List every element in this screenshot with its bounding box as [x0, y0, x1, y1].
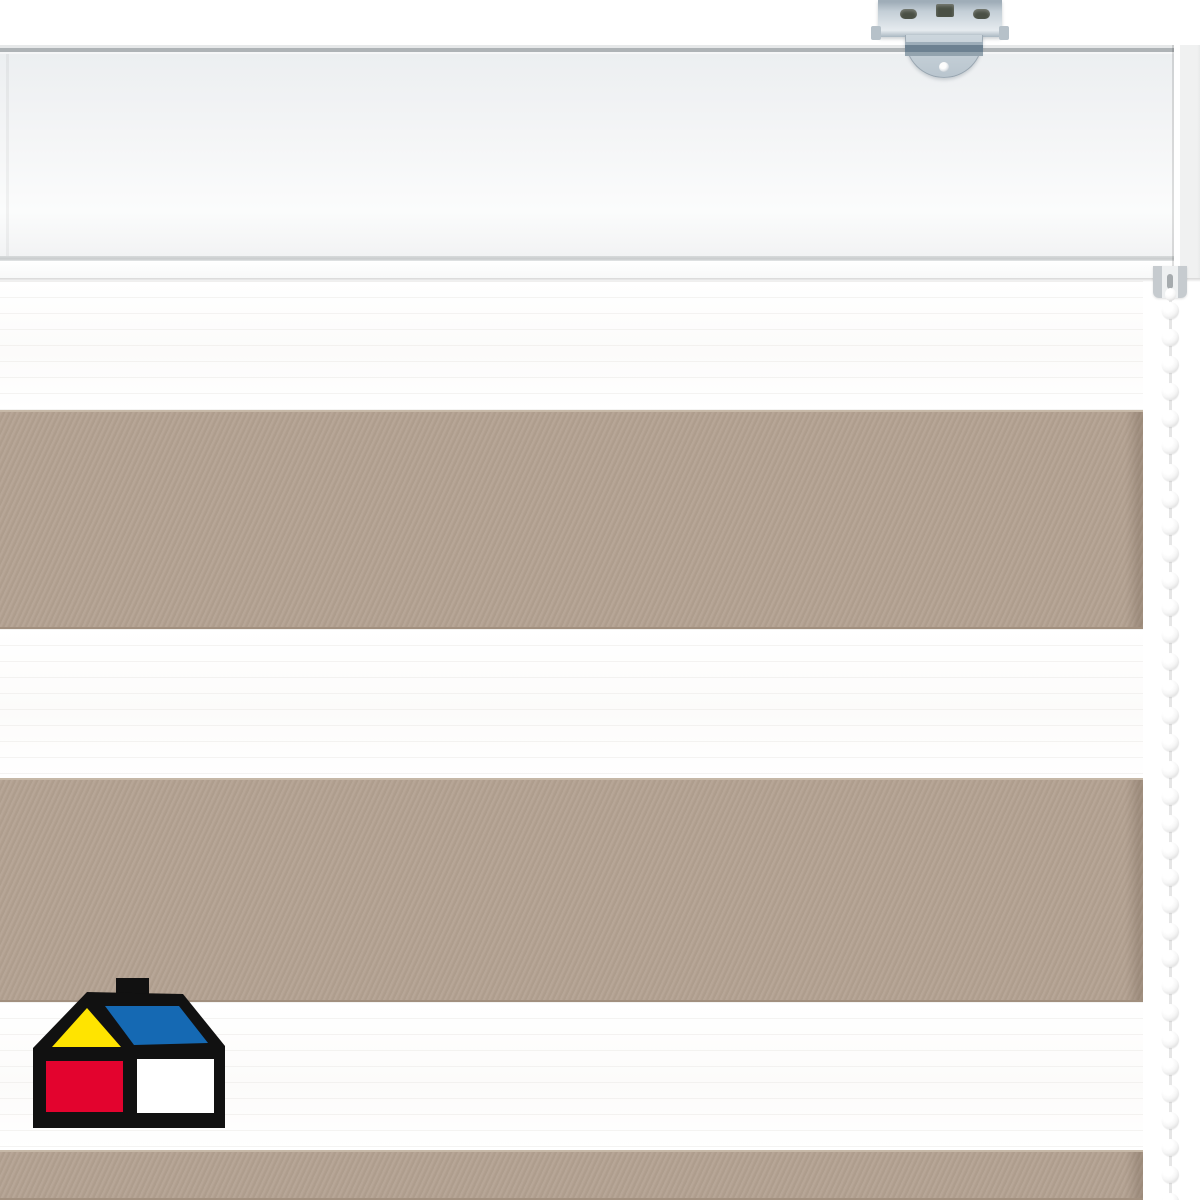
- fabric-stripe-taupe: [0, 778, 1143, 1002]
- chain-bead: [1162, 491, 1179, 508]
- chain-bead: [1162, 518, 1179, 535]
- chain-bead: [1162, 599, 1179, 616]
- bracket-clip-hole: [939, 62, 949, 72]
- headrail-shadow: [0, 278, 1200, 282]
- fabric-stripe-sheer-white: [0, 281, 1143, 410]
- chain-bead: [1162, 923, 1179, 940]
- chain-bead: [1162, 842, 1179, 859]
- chain-bead: [1162, 464, 1179, 481]
- chain-bead: [1162, 1085, 1179, 1102]
- chain-bead: [1162, 383, 1179, 400]
- bracket-screw-slot: [900, 9, 917, 19]
- chain-bead: [1162, 977, 1179, 994]
- chain-mechanism-slot: [1167, 274, 1173, 289]
- chain-bead: [1162, 1166, 1179, 1183]
- headrail-left-seam: [6, 54, 9, 256]
- chain-bead: [1162, 950, 1179, 967]
- bracket-screw-slot: [973, 9, 990, 19]
- chain-bead: [1162, 626, 1179, 643]
- headrail-face: [0, 54, 1200, 256]
- chain-bead: [1162, 1004, 1179, 1021]
- chain-bead: [1162, 1058, 1179, 1075]
- chain-bead: [1162, 788, 1179, 805]
- fabric-stripe-taupe: [0, 410, 1143, 629]
- fabric-stripe-taupe: [0, 1150, 1143, 1200]
- chain-bead: [1162, 572, 1179, 589]
- bead-chain: [1162, 302, 1179, 1200]
- bracket-side-lip: [999, 26, 1009, 40]
- chain-bead: [1162, 1139, 1179, 1156]
- fabric-stripe-sheer-white: [0, 629, 1143, 778]
- chain-bead: [1162, 356, 1179, 373]
- chain-bead: [1162, 761, 1179, 778]
- headrail-top-edge: [0, 45, 1200, 54]
- chain-bead: [1162, 707, 1179, 724]
- chain-bead: [1162, 329, 1179, 346]
- chain-bead: [1162, 437, 1179, 454]
- chain-bead: [1162, 302, 1179, 319]
- bracket-screw-slot: [936, 4, 954, 17]
- logo-wall-white: [137, 1059, 214, 1113]
- headrail-bottom-lip: [0, 261, 1200, 278]
- chain-bead: [1162, 815, 1179, 832]
- chain-bead: [1162, 896, 1179, 913]
- chain-bead: [1162, 680, 1179, 697]
- chain-bead: [1162, 653, 1179, 670]
- headrail-endcap: [1172, 45, 1200, 278]
- ceiling-bracket: [878, 0, 1002, 78]
- chain-bead: [1162, 734, 1179, 751]
- bracket-clip-bar: [905, 42, 983, 56]
- homecenter-logo: [33, 978, 225, 1128]
- chain-bead: [1162, 410, 1179, 427]
- chain-bead: [1162, 1031, 1179, 1048]
- headrail-cassette: [0, 45, 1200, 281]
- chain-bead: [1162, 545, 1179, 562]
- chain-bead: [1162, 1112, 1179, 1129]
- product-photo: [0, 0, 1200, 1200]
- chain-bead: [1162, 869, 1179, 886]
- logo-wall-red: [46, 1061, 123, 1112]
- bracket-side-lip: [871, 26, 881, 40]
- chain-bead: [1162, 1193, 1179, 1200]
